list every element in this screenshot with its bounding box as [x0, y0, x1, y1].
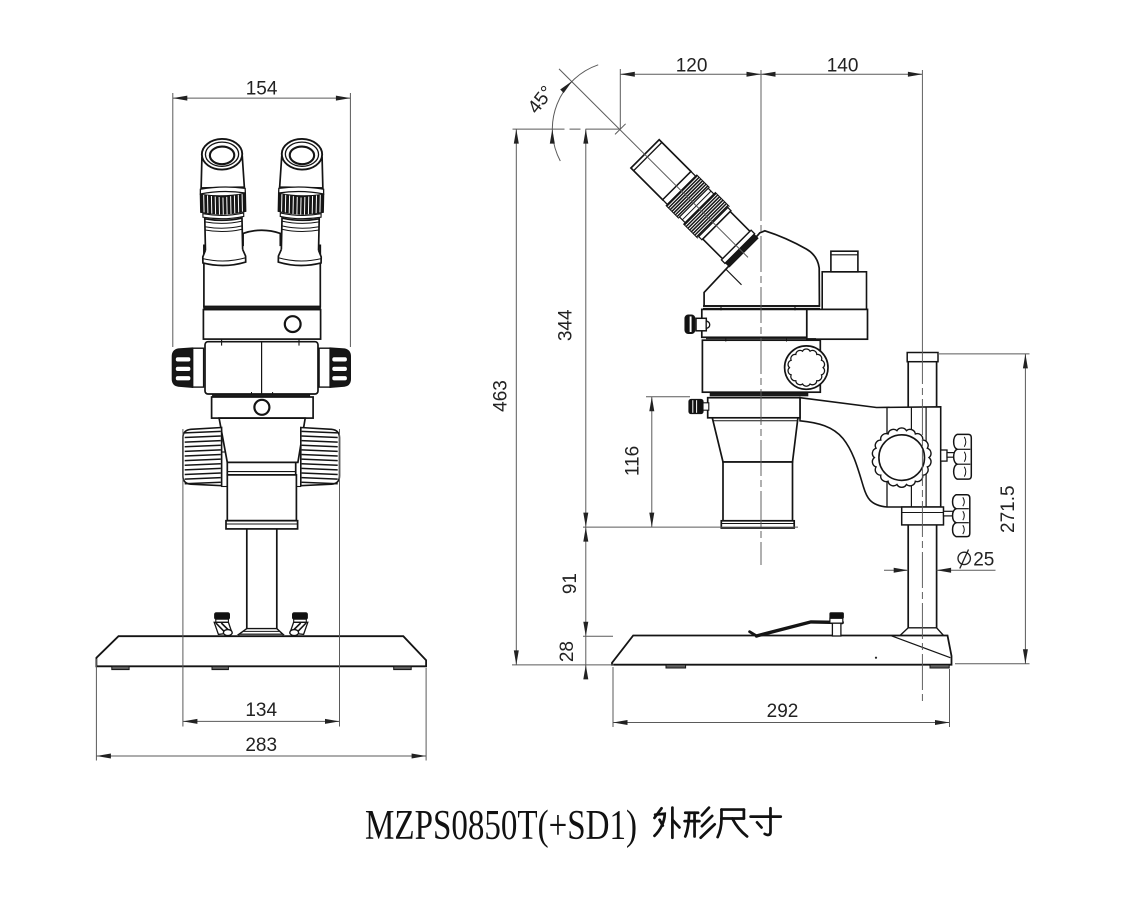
- svg-text:28: 28: [557, 641, 578, 662]
- svg-text:271.5: 271.5: [998, 485, 1019, 533]
- svg-text:283: 283: [245, 735, 277, 756]
- svg-text:292: 292: [767, 701, 799, 722]
- svg-text:120: 120: [676, 55, 708, 76]
- svg-text:344: 344: [556, 309, 577, 341]
- svg-text:25: 25: [973, 550, 994, 571]
- svg-text:463: 463: [491, 380, 512, 412]
- svg-text:140: 140: [827, 55, 859, 76]
- svg-text:154: 154: [246, 79, 278, 100]
- svg-text:91: 91: [560, 573, 581, 594]
- svg-text:134: 134: [245, 700, 277, 721]
- svg-text:116: 116: [622, 446, 643, 476]
- svg-text:MZPS0850T(+SD1): MZPS0850T(+SD1): [365, 803, 637, 849]
